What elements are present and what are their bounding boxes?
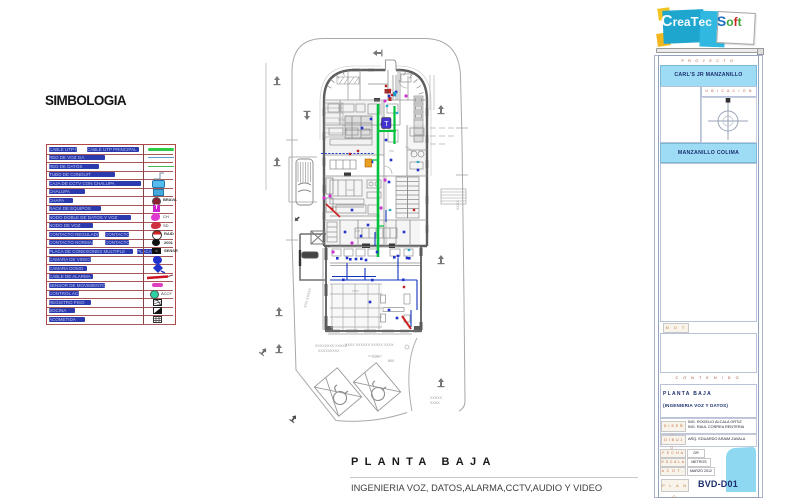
svg-text:B60: B60: [388, 359, 394, 363]
svg-text:xxxx: xxxx: [347, 188, 354, 192]
svg-text:XXXX: XXXX: [430, 401, 440, 405]
svg-text:xxx: xxx: [355, 229, 360, 233]
svg-text:1.25: 1.25: [372, 355, 379, 359]
svg-text:xxxx: xxxx: [338, 118, 345, 122]
svg-text:xxx: xxx: [389, 149, 394, 153]
svg-text:XXXXXXXXX: XXXXXXXXX: [318, 349, 340, 353]
svg-text:T: T: [384, 121, 389, 128]
svg-text:xxxx: xxxx: [352, 289, 359, 293]
svg-text:XXXXXXXX XXXXX: XXXXXXXX XXXXX: [315, 344, 348, 348]
svg-text:XXXX XXXXXX XXXXX XXXX: XXXX XXXXXX XXXXX XXXX: [345, 343, 394, 347]
svg-text:XXXXX: XXXXX: [430, 396, 443, 400]
svg-text:XXXX: XXXX: [456, 200, 460, 210]
svg-text:XXX XXXXX: XXX XXXXX: [303, 287, 312, 308]
